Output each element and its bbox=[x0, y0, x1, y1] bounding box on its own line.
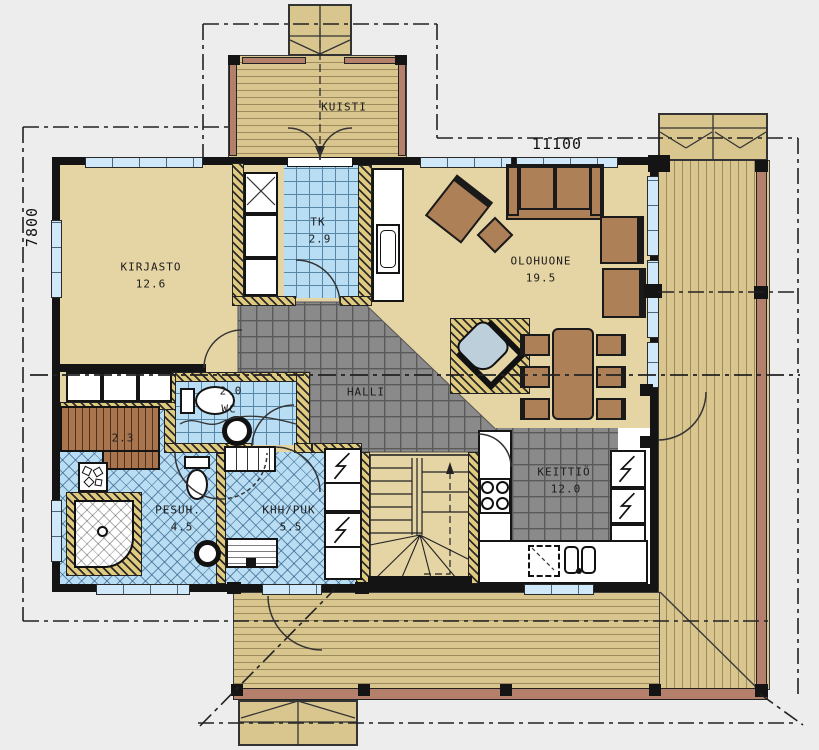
label-keittio: KEITTIÖ bbox=[537, 466, 590, 479]
label-pesuh-area: 4.5 bbox=[171, 521, 194, 534]
label-khh: KHH/PUK bbox=[262, 504, 315, 517]
label-kirjasto: KIRJASTO bbox=[121, 261, 182, 274]
label-wc: WC bbox=[221, 403, 236, 416]
door-arc-tk bbox=[296, 260, 340, 304]
door-arc-wc bbox=[252, 405, 294, 447]
dimension-width: 11100 bbox=[532, 135, 582, 153]
label-keittio-area: 12.0 bbox=[551, 483, 582, 496]
steps-detail bbox=[240, 6, 768, 746]
dishwasher-mark bbox=[532, 548, 554, 570]
label-olohuone-area: 19.5 bbox=[526, 272, 557, 285]
wc-counter-edge bbox=[180, 416, 296, 424]
door-arc-deck-east bbox=[658, 392, 706, 440]
kitchen-counter-curve bbox=[478, 434, 511, 467]
door-arc-kirjasto bbox=[204, 330, 242, 368]
label-tk-area: 2.9 bbox=[309, 233, 332, 246]
label-khh-area: 5.5 bbox=[280, 521, 303, 534]
label-kuisti: KUISTI bbox=[321, 101, 367, 114]
dimension-depth: 7800 bbox=[23, 207, 41, 247]
label-wc-area: 2.0 bbox=[220, 385, 243, 398]
annotation-layer bbox=[0, 0, 819, 750]
door-arcs bbox=[175, 128, 706, 650]
label-tk: TK bbox=[310, 216, 325, 229]
label-sauna-area: 2.3 bbox=[112, 432, 135, 445]
door-arc-front-right bbox=[320, 128, 352, 160]
door-arc-pesuh bbox=[175, 453, 221, 499]
closet-detail bbox=[247, 177, 275, 205]
door-arc-deck-south bbox=[268, 596, 322, 650]
door-arc-front-left bbox=[288, 128, 320, 160]
door-arc-khh bbox=[275, 447, 320, 492]
label-halli: HALLI bbox=[347, 386, 385, 399]
door-arc-pesuh-swing bbox=[221, 453, 267, 499]
label-olohuone: OLOHUONE bbox=[511, 255, 572, 268]
label-pesuh: PESUH. bbox=[155, 504, 201, 517]
label-kirjasto-area: 12.6 bbox=[136, 278, 167, 291]
floor-plan: KUISTI KIRJASTO 12.6 TK 2.9 OLOHUONE 19.… bbox=[0, 0, 819, 750]
